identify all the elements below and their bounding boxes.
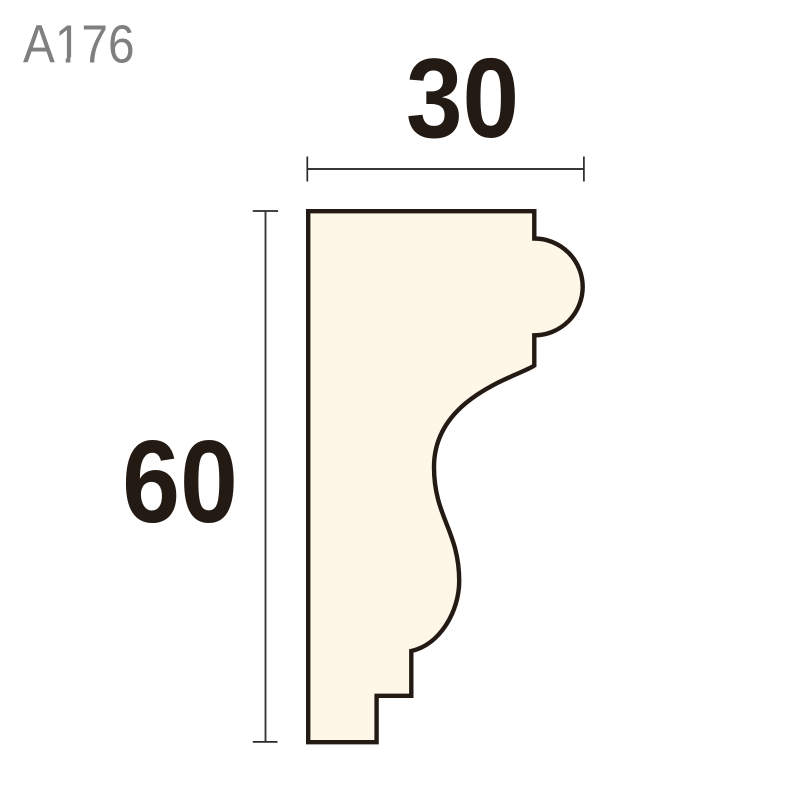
svg-text:60: 60 [122, 417, 238, 547]
svg-text:30: 30 [406, 35, 519, 161]
svg-text:A176: A176 [23, 14, 135, 74]
